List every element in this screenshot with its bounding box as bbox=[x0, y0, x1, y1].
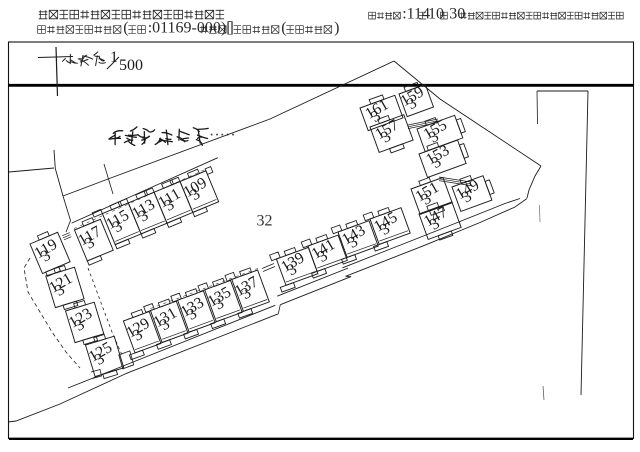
svg-text::114: :114 bbox=[402, 6, 430, 23]
svg-text:32: 32 bbox=[257, 213, 273, 230]
svg-text:500: 500 bbox=[119, 57, 143, 74]
svg-text:10: 10 bbox=[428, 6, 444, 23]
svg-text:·····: ····· bbox=[209, 127, 236, 144]
svg-text:]: ] bbox=[229, 20, 234, 37]
svg-text::01169-000)[: :01169-000)[ bbox=[148, 20, 232, 37]
svg-text:(: ( bbox=[281, 20, 286, 37]
svg-text:(: ( bbox=[123, 20, 128, 37]
svg-text:): ) bbox=[334, 20, 339, 37]
svg-text:1: 1 bbox=[110, 49, 118, 66]
